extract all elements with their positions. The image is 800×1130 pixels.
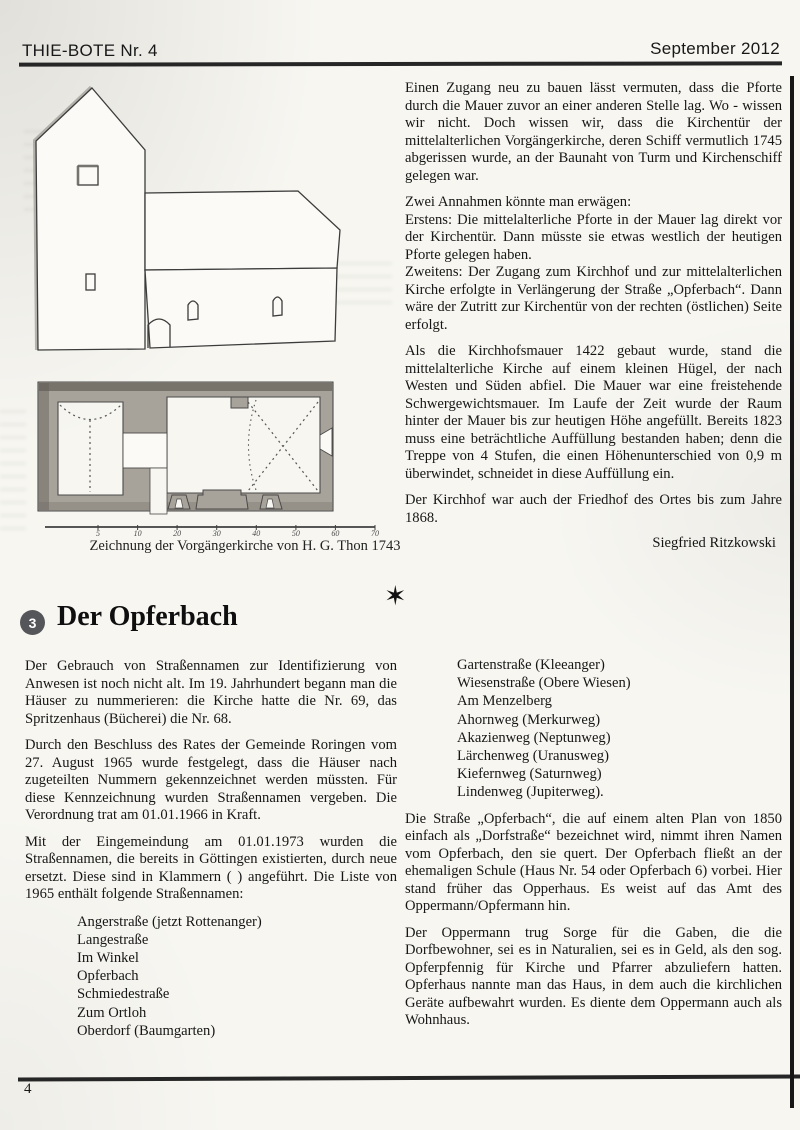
figure-caption: Zeichnung der Vorgängerkirche von H. G. … bbox=[55, 538, 435, 555]
street-list-item: Zum Ortloh bbox=[77, 1004, 397, 1022]
scan-edge-line bbox=[790, 76, 794, 1108]
scale-label: 30 bbox=[209, 529, 225, 538]
scale-label: 10 bbox=[130, 529, 146, 538]
author-signature: Siegfried Ritzkowski bbox=[405, 535, 782, 553]
scale-label: 60 bbox=[327, 529, 343, 538]
scale-label: 20 bbox=[169, 529, 185, 538]
street-list-item: Lindenweg (Jupiterweg). bbox=[457, 783, 782, 801]
scanned-newsletter-page: THIE-BOTE Nr. 4 September 2012 bbox=[0, 0, 800, 1130]
article-paragraph: Mit der Eingemeindung am 01.01.1973 wurd… bbox=[25, 834, 397, 904]
church-elevation-drawing bbox=[20, 78, 400, 378]
church-floorplan-drawing bbox=[20, 372, 400, 537]
scale-label: 70 bbox=[367, 529, 383, 538]
street-list-item: Im Winkel bbox=[77, 949, 397, 967]
street-list-item: Lärchenweg (Uranusweg) bbox=[457, 747, 782, 765]
article-paragraph: Der Gebrauch von Straßennamen zur Identi… bbox=[25, 658, 397, 728]
issue-date: September 2012 bbox=[650, 39, 780, 59]
article-paragraph: Erstens: Die mittelalterliche Pforte in … bbox=[405, 212, 782, 265]
footer-rule bbox=[18, 1074, 800, 1081]
street-list-item: Akazienweg (Neptunweg) bbox=[457, 729, 782, 747]
header-rule bbox=[19, 61, 782, 66]
section-title: Der Opferbach bbox=[57, 601, 238, 633]
article-paragraph-group: Zwei Annahmen könnte man erwägen: Ersten… bbox=[405, 194, 782, 334]
article-column-right-top: Einen Zugang neu zu bauen lässt vermuten… bbox=[405, 80, 782, 553]
article-paragraph: Durch den Beschluss des Rates der Gemein… bbox=[25, 737, 397, 825]
street-list-renamed: Gartenstraße (Kleeanger)Wiesenstraße (Ob… bbox=[405, 656, 782, 802]
page-number: 4 bbox=[24, 1081, 32, 1098]
scale-label: 50 bbox=[288, 529, 304, 538]
article-paragraph: Als die Kirchhofsmauer 1422 gebaut wurde… bbox=[405, 343, 782, 483]
article-paragraph: Zweitens: Der Zugang zum Kirchhof und zu… bbox=[405, 264, 782, 334]
street-list-item: Oberdorf (Baumgarten) bbox=[77, 1022, 397, 1040]
article-paragraph: Der Kirchhof war auch der Friedhof des O… bbox=[405, 492, 782, 527]
street-list-item: Opferbach bbox=[77, 967, 397, 985]
street-list-1965: Angerstraße (jetzt Rottenanger)Langestra… bbox=[25, 913, 397, 1040]
scale-label: 5 bbox=[90, 529, 106, 538]
street-list-item: Schmiedestraße bbox=[77, 985, 397, 1003]
article-column-left-bottom: Der Gebrauch von Straßennamen zur Identi… bbox=[25, 658, 397, 1049]
scale-label: 40 bbox=[248, 529, 264, 538]
article-paragraph: Einen Zugang neu zu bauen lässt vermuten… bbox=[405, 80, 782, 185]
street-list-item: Gartenstraße (Kleeanger) bbox=[457, 656, 782, 674]
street-list-item: Angerstraße (jetzt Rottenanger) bbox=[77, 913, 397, 931]
street-list-item: Ahornweg (Merkurweg) bbox=[457, 711, 782, 729]
street-list-item: Langestraße bbox=[77, 931, 397, 949]
article-column-right-bottom: Gartenstraße (Kleeanger)Wiesenstraße (Ob… bbox=[405, 656, 782, 1039]
star-icon: ✶ bbox=[384, 583, 407, 610]
newsletter-title: THIE-BOTE Nr. 4 bbox=[22, 41, 158, 61]
street-list-item: Am Menzelberg bbox=[457, 692, 782, 710]
street-list-item: Wiesenstraße (Obere Wiesen) bbox=[457, 674, 782, 692]
article-paragraph: Zwei Annahmen könnte man erwägen: bbox=[405, 194, 782, 212]
article-paragraph: Der Oppermann trug Sorge für die Gaben, … bbox=[405, 925, 782, 1030]
article-paragraph: Die Straße „Opferbach“, die auf einem al… bbox=[405, 811, 782, 916]
scale-bar-labels: 510203040506070 bbox=[90, 529, 383, 538]
section-number-badge: 3 bbox=[20, 610, 45, 635]
street-list-item: Kiefernweg (Saturnweg) bbox=[457, 765, 782, 783]
